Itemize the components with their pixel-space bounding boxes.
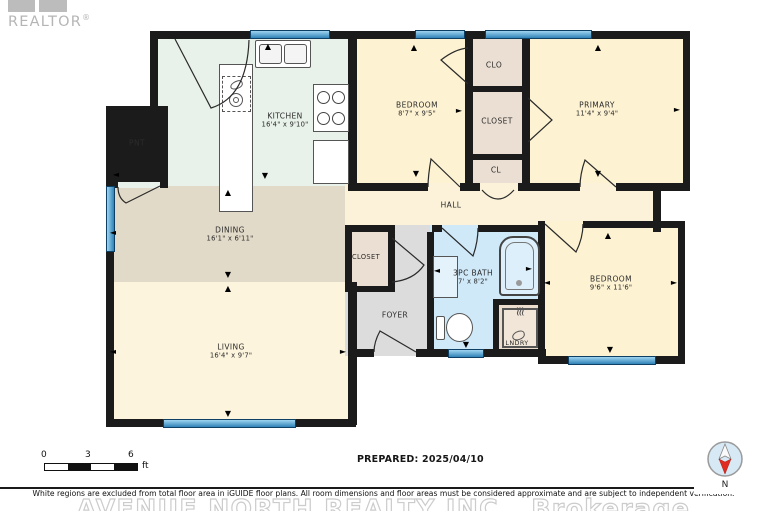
window [568,356,656,365]
arrow-up-icon: ▲ [605,232,611,240]
registered-mark: ® [82,13,91,22]
wall [522,31,530,191]
room-label-foyer: FOYER [382,311,408,320]
window [106,186,115,252]
stove-icon [313,84,349,132]
room-label-hall: HALL [441,201,462,210]
room-label-bedroom-top: BEDROOM 8'7" x 9'5" [396,101,438,118]
room-label-dining: DINING 16'1" x 6'11" [207,226,254,243]
disclaimer-text: White regions are excluded from total fl… [0,489,767,498]
window [250,30,330,39]
scale-segment [68,464,91,470]
wall [493,299,545,305]
toilet-icon [446,313,473,342]
arrow-down-icon: ▼ [463,341,469,349]
arrow-up-icon: ▲ [411,44,417,52]
appliance-dial-inner [233,97,239,103]
window [163,419,296,428]
burner [332,112,345,125]
burner [317,112,330,125]
wall [518,183,580,191]
scale-tick: 3 [85,450,91,460]
burner [317,91,330,104]
room-label-living: LIVING 16'4" x 9'7" [210,343,252,360]
scale-tick: 6 [128,450,134,460]
scale-segment [114,464,137,470]
window [415,30,465,39]
room-label-pantry: PNT [129,139,145,148]
wall [460,183,480,191]
compass: N [694,438,756,494]
arrow-left-icon: ◄ [434,267,440,275]
arrow-left-icon: ◄ [110,348,116,356]
wall [348,31,357,191]
realtor-logo-text: REALTOR® [8,13,91,30]
sink-basin [284,44,307,64]
wall [348,183,428,191]
wall [150,31,158,113]
arrow-up-icon: ▲ [265,43,271,51]
arrow-down-icon: ▼ [607,346,613,354]
wall [465,31,473,191]
fridge-icon [313,140,349,184]
arrow-right-icon: ► [526,265,532,273]
compass-north-label: N [694,480,756,490]
pantry-door-opening [118,182,160,188]
prepared-date: PREPARED: 2025/04/10 [357,454,484,465]
arrow-right-icon: ► [671,279,677,287]
arrow-down-icon: ▼ [413,170,419,178]
room-label-primary: PRIMARY 11'4" x 9'4" [576,101,618,118]
wall [493,299,499,352]
washer-waves: ≋ [513,306,527,332]
arrow-left-icon: ◄ [110,229,116,237]
arrow-down-icon: ▼ [595,170,601,178]
room-label-bath: 3PC BATH 7' x 8'2" [453,269,493,286]
kitchen-sink-icon [255,40,311,68]
arrow-down-icon: ▼ [225,271,231,279]
room-label-clo: CLO [486,61,502,70]
arrow-left-icon: ◄ [113,171,119,179]
room-label-closet-top: CLOSET [481,117,513,126]
compass-icon [702,438,748,484]
bathtub-drain [516,280,522,286]
arrow-up-icon: ▲ [225,285,231,293]
floorplan-canvas: REALTOR® [0,0,767,511]
arrow-up-icon: ▲ [595,44,601,52]
scale-segment [45,464,68,470]
window [485,30,592,39]
scale-tick: 0 [41,450,47,460]
arrow-down-icon: ▼ [225,410,231,418]
room-label-laundry: LNDRY [505,339,528,347]
scale-bar [44,463,138,471]
room-label-bedroom-right: BEDROOM 9'6" x 11'6" [590,275,632,292]
arrow-left-icon: ◄ [544,279,550,287]
wall [583,221,685,228]
arrow-down-icon: ▼ [262,172,268,180]
room-label-kitchen: KITCHEN 16'4" x 9'10" [262,112,309,129]
wall [465,86,530,92]
realtor-logo-block-icon [39,0,67,12]
arrow-right-icon: ► [340,348,346,356]
realtor-logo-block-icon [8,0,35,12]
room-label-cl: CL [491,166,501,175]
arrow-up-icon: ▲ [225,189,231,197]
wall [678,221,685,364]
bathtub-icon [499,236,540,296]
scale-segment [91,464,114,470]
dishwasher-icon [222,76,251,112]
arrow-right-icon: ► [456,107,462,115]
window [448,349,484,358]
wall [432,225,442,232]
wall [348,349,374,357]
room-label-closet-mid: CLOSET [352,253,380,261]
wall [388,225,395,292]
burner [332,91,345,104]
arrow-right-icon: ► [674,106,680,114]
wall [465,154,530,160]
wall [478,225,545,232]
wall [683,31,690,191]
appliance-dial [229,93,243,107]
scale-unit-label: ft [142,461,149,471]
toilet-tank [436,316,445,340]
appliance-shape [229,79,244,91]
